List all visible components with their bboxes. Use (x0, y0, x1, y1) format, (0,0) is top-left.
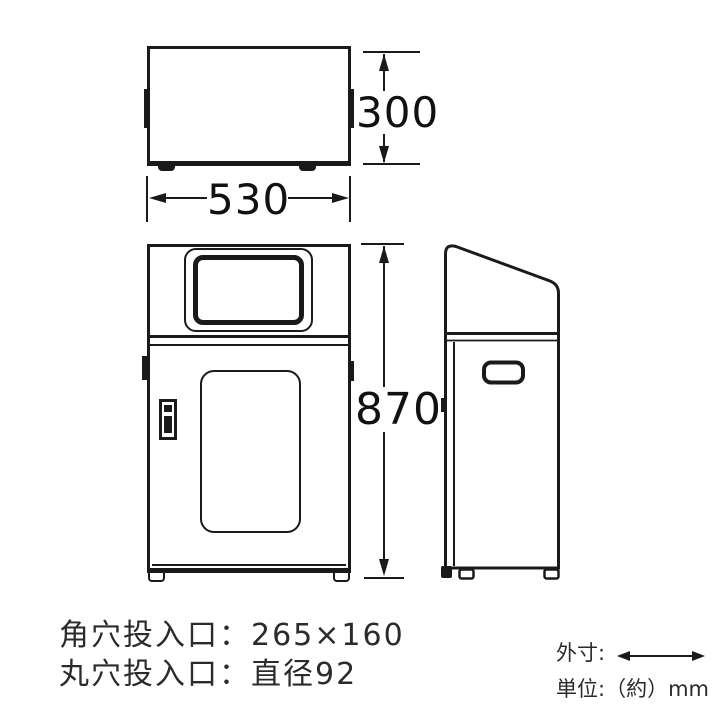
front-view-base-line (152, 564, 346, 566)
lock-latch (159, 399, 177, 440)
dim-width-tick-left (146, 176, 148, 222)
top-view-foot-left (158, 164, 175, 171)
dim-depth-label: 300 (356, 92, 426, 134)
side-handle (484, 363, 523, 383)
legend-outer-dim-label: 外寸: (556, 643, 605, 664)
dim-height-line-top (383, 246, 385, 387)
dim-width-line-right (288, 197, 338, 199)
note-square-slot: 角穴投入口：265×160 (59, 616, 405, 656)
top-view-foot-right (299, 164, 316, 171)
front-view-foot-right (333, 571, 350, 582)
front-view-foot-left (148, 571, 165, 582)
side-latch-tab (441, 398, 446, 412)
dim-width-arrow-right-icon (332, 193, 349, 203)
side-view-foot-right (545, 570, 559, 579)
legend-double-arrow-icon (617, 650, 705, 662)
dim-width-line-left (160, 197, 210, 199)
side-view (430, 236, 575, 588)
front-view-left-tab (142, 356, 147, 380)
dim-width-arrow-left-icon (149, 193, 166, 203)
dim-depth-tick-bottom (363, 163, 420, 165)
lock-latch-bar (164, 416, 172, 433)
dim-width-label: 530 (207, 179, 287, 221)
dim-height-label: 870 (355, 388, 425, 432)
note-round-slot: 丸穴投入口：直径92 (59, 655, 357, 695)
dim-height-tick-bottom (364, 577, 404, 579)
dim-height-line-bottom (383, 432, 385, 560)
top-view-left-tab (144, 89, 149, 128)
side-view-outline (446, 246, 559, 568)
slot-opening-inner (193, 255, 304, 325)
front-view-divider-bottom (147, 344, 351, 346)
side-view-foot-hinge (441, 566, 452, 578)
dim-depth-arrow-up-icon (379, 54, 389, 71)
dim-height-tick-top (361, 243, 404, 245)
dim-height-arrow-down-icon (379, 559, 389, 576)
dim-width-tick-right (349, 176, 351, 222)
top-view-right-tab (349, 89, 354, 128)
front-view-right-tab (349, 361, 354, 381)
dim-height-arrow-up-icon (379, 246, 389, 263)
dim-depth-tick-top (363, 51, 420, 53)
lock-latch-dot (164, 405, 172, 412)
top-view-outline (147, 46, 351, 166)
door-panel (200, 370, 301, 533)
legend-unit-label: 単位:（約）mm (556, 679, 709, 700)
dimension-diagram: 300 530 870 角穴投入口：26 (0, 0, 720, 720)
front-view-divider-top (147, 335, 351, 338)
dim-depth-arrow-down-icon (379, 146, 389, 163)
side-view-foot-left (460, 570, 474, 579)
